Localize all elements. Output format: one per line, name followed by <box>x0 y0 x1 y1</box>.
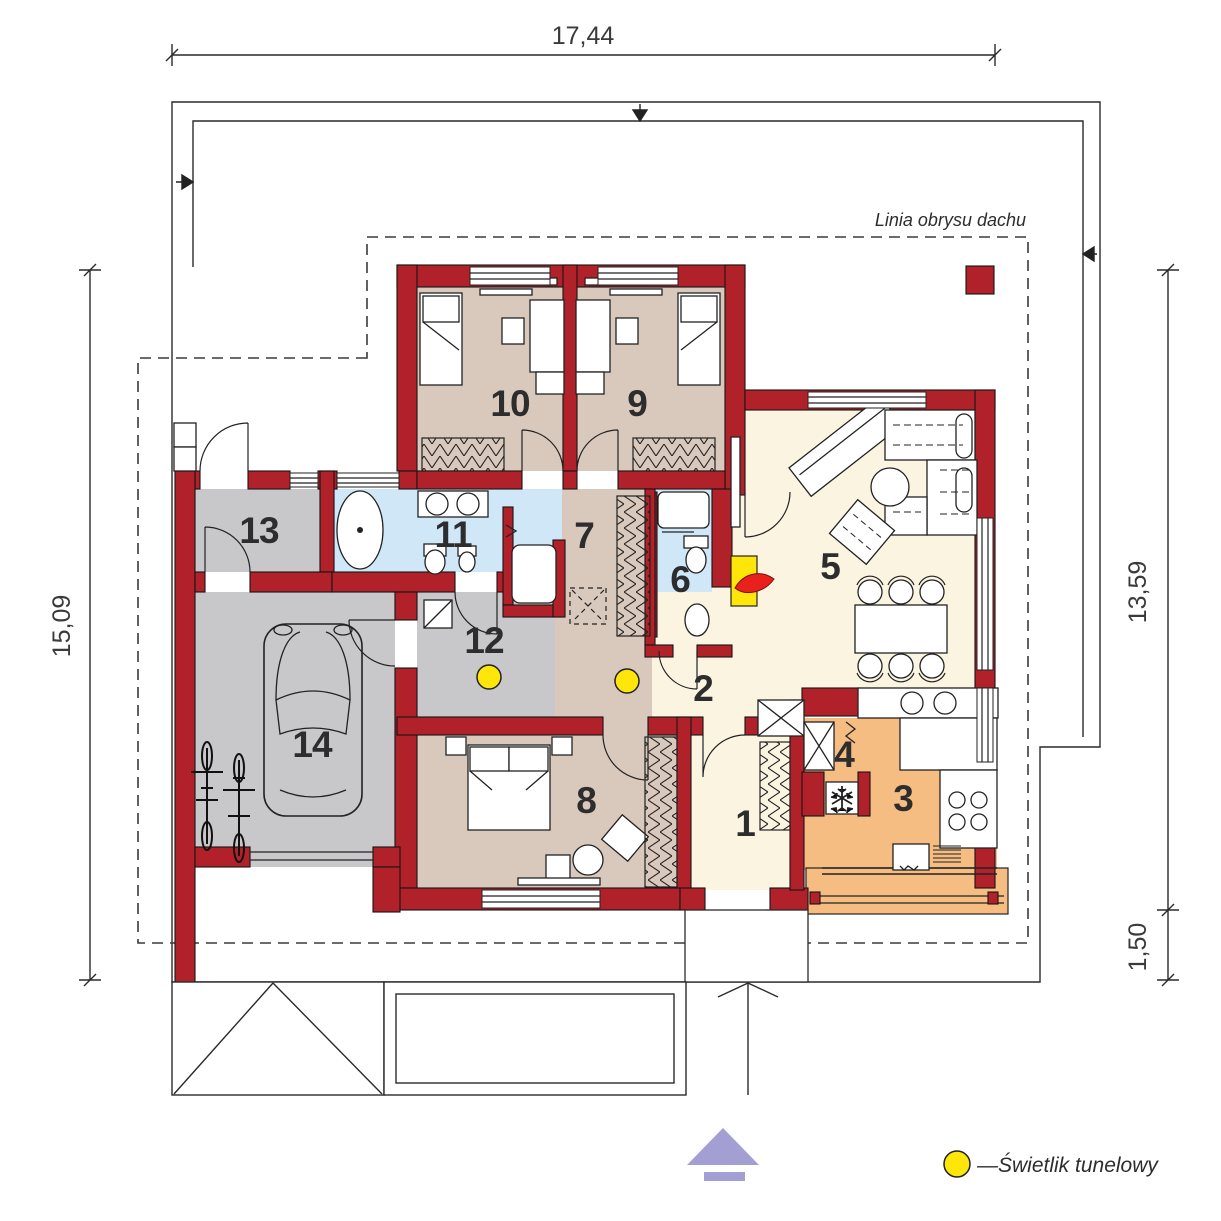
coffee-table-icon <box>871 468 909 506</box>
stool-icon <box>546 855 570 881</box>
washing-machine-icon <box>424 600 452 628</box>
kitchen-counter-east <box>940 770 997 848</box>
dimension-top: 17,44 <box>552 22 615 50</box>
side-table-icon <box>573 845 603 875</box>
shelf-icon <box>610 289 662 295</box>
room-2-number: 2 <box>693 668 713 709</box>
wardrobe-icon <box>422 438 504 471</box>
window-icon <box>470 267 550 285</box>
window-icon <box>808 392 926 408</box>
room-4-number: 4 <box>834 734 855 775</box>
wardrobe-icon <box>617 496 650 636</box>
roof-outline-label: Linia obrysu dachu <box>875 210 1026 230</box>
closet-icon <box>758 700 804 736</box>
window-icon <box>598 267 678 285</box>
floor-plan: Linia obrysu dachu 17,44 15,09 13,59 1,5… <box>0 0 1221 1221</box>
legend: —Świetlik tunelowy <box>944 1151 1159 1177</box>
chair-icon <box>502 318 524 344</box>
room-7-number: 7 <box>574 515 594 556</box>
window-icon <box>977 688 993 762</box>
room-13-number: 13 <box>239 510 279 551</box>
shower-icon <box>512 545 556 603</box>
legend-skylight-dot-icon <box>944 1151 970 1177</box>
garage-door-floor <box>250 847 373 867</box>
drain-icon <box>357 527 363 533</box>
desk-icon <box>576 300 610 372</box>
entry-steps <box>174 423 196 471</box>
desk-return-icon <box>576 372 604 394</box>
room-14-number: 14 <box>292 724 333 765</box>
desk-icon <box>530 300 564 372</box>
room-10-number: 10 <box>490 383 530 424</box>
dining-set-icon <box>855 576 947 682</box>
bed-icon <box>678 293 720 385</box>
room-12-number: 12 <box>464 620 504 661</box>
legend-skylight-label: —Świetlik tunelowy <box>976 1153 1159 1177</box>
window-icon <box>290 473 318 487</box>
pantry-shelf-icon <box>804 722 834 770</box>
chimney-icon <box>966 266 994 294</box>
driveway <box>172 982 384 1095</box>
skylight-dot-icon <box>615 669 639 693</box>
room-5-number: 5 <box>820 546 840 587</box>
window-icon <box>482 890 600 908</box>
room-6-number: 6 <box>670 559 690 600</box>
entrance-porch <box>685 910 808 982</box>
chair-icon <box>616 318 638 344</box>
dimension-right-upper: 13,59 <box>1124 561 1152 624</box>
bed-icon <box>420 293 462 385</box>
wardrobe-icon <box>760 742 790 830</box>
window-icon <box>337 473 399 487</box>
dimension-right-lower: 1,50 <box>1124 923 1152 972</box>
room-14-floor <box>195 592 395 847</box>
room-11-number: 11 <box>434 514 472 555</box>
bathtub-icon <box>658 492 709 528</box>
washbasin-icon <box>685 604 709 636</box>
skylight-dot-icon <box>477 665 501 689</box>
wardrobe-icon <box>645 737 677 887</box>
dimension-left: 15,09 <box>48 595 76 658</box>
shelf-icon <box>480 289 532 295</box>
tall-window-icon <box>731 437 740 527</box>
window-icon <box>977 518 993 670</box>
wardrobe-icon <box>633 438 715 471</box>
fridge-icon <box>826 782 858 814</box>
room-3-number: 3 <box>893 778 913 819</box>
room-9-number: 9 <box>627 383 647 424</box>
walkway <box>384 982 686 1095</box>
console-icon <box>518 878 600 885</box>
desk-return-icon <box>536 372 564 394</box>
room-1-number: 1 <box>735 803 755 844</box>
room-8-number: 8 <box>576 780 596 821</box>
